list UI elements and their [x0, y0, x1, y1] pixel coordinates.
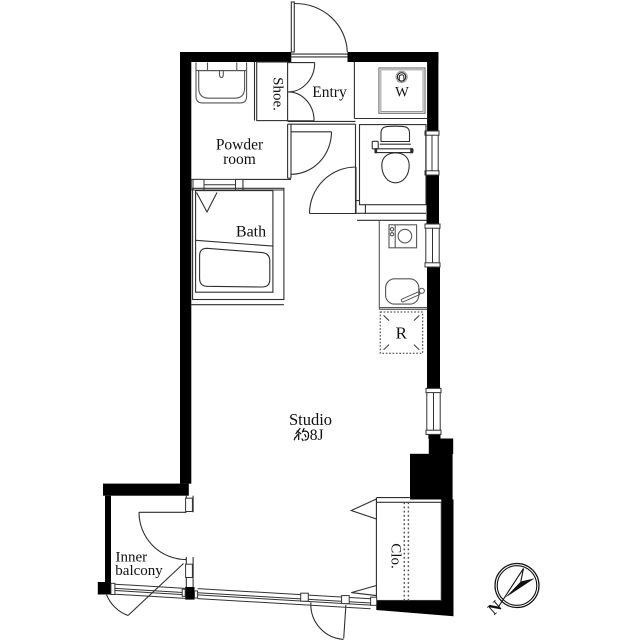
svg-text:balcony: balcony — [115, 563, 163, 579]
svg-text:Clo.: Clo. — [388, 543, 404, 568]
svg-text:room: room — [223, 151, 256, 168]
svg-text:Shoe.: Shoe. — [270, 77, 286, 111]
svg-text:Entry: Entry — [312, 84, 347, 101]
svg-text:W: W — [395, 84, 409, 100]
svg-text:8J: 8J — [310, 427, 324, 444]
svg-text:R: R — [396, 323, 408, 342]
svg-text:Bath: Bath — [236, 223, 266, 240]
